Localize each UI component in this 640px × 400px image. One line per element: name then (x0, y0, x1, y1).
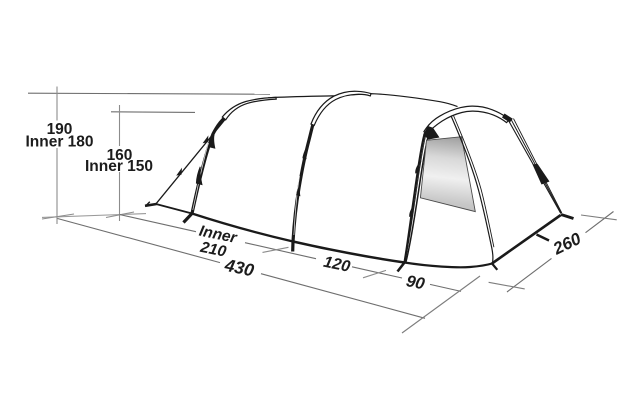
svg-text:120: 120 (322, 254, 352, 276)
svg-text:430: 430 (222, 255, 256, 281)
svg-text:Inner 150: Inner 150 (85, 158, 153, 175)
svg-text:260: 260 (549, 229, 584, 259)
svg-text:Inner 180: Inner 180 (25, 134, 93, 151)
svg-text:90: 90 (405, 272, 427, 293)
